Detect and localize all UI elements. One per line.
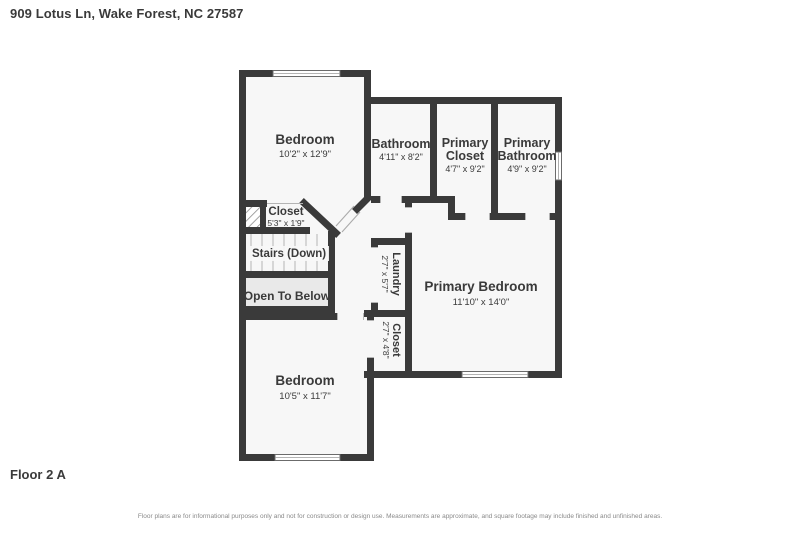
room-label-bedroom-lower: Bedroom xyxy=(275,373,334,388)
floor-plan-canvas: Bedroom 10'2" x 12'9" Bathroom 4'11" x 8… xyxy=(0,0,800,533)
room-label-bathroom: Bathroom xyxy=(371,137,430,151)
room-dims-primary-bathroom: 4'9" x 9'2" xyxy=(507,164,546,174)
floor-level-label: Floor 2 A xyxy=(10,467,66,482)
room-dims-bedroom-lower: 10'5" x 11'7" xyxy=(279,391,330,402)
room-dims-bathroom: 4'11" x 8'2" xyxy=(379,152,423,162)
room-label-primary-bedroom: Primary Bedroom xyxy=(424,279,537,294)
room-dims-hall-closet: 5'3" x 1'9" xyxy=(267,218,304,228)
chase-hatch xyxy=(246,207,260,227)
room-dims-primary-bedroom: 11'10" x 14'0" xyxy=(453,297,510,308)
disclaimer-text: Floor plans are for informational purpos… xyxy=(0,513,800,520)
room-label-primary-bathroom-1: Primary xyxy=(504,136,551,150)
room-label-hall-closet: Closet xyxy=(268,206,303,218)
room-dims-laundry: 2'7" x 5'7" xyxy=(380,255,390,292)
room-label-stairs: Stairs (Down) xyxy=(252,248,326,260)
room-dims-bedroom-upper: 10'2" x 12'9" xyxy=(279,149,331,160)
room-dims-primary-closet: 4'7" x 9'2" xyxy=(445,164,484,174)
room-label-laundry: Laundry xyxy=(390,252,402,296)
room-label-open-to-below: Open To Below xyxy=(244,289,331,303)
room-dims-bedroom-closet: 2'7" x 4'8" xyxy=(381,321,391,358)
room-label-primary-bathroom-2: Bathroom xyxy=(497,149,556,163)
room-label-primary-closet-1: Primary xyxy=(442,136,489,150)
room-label-bedroom-upper: Bedroom xyxy=(275,132,334,147)
room-label-primary-closet-2: Closet xyxy=(446,149,485,163)
